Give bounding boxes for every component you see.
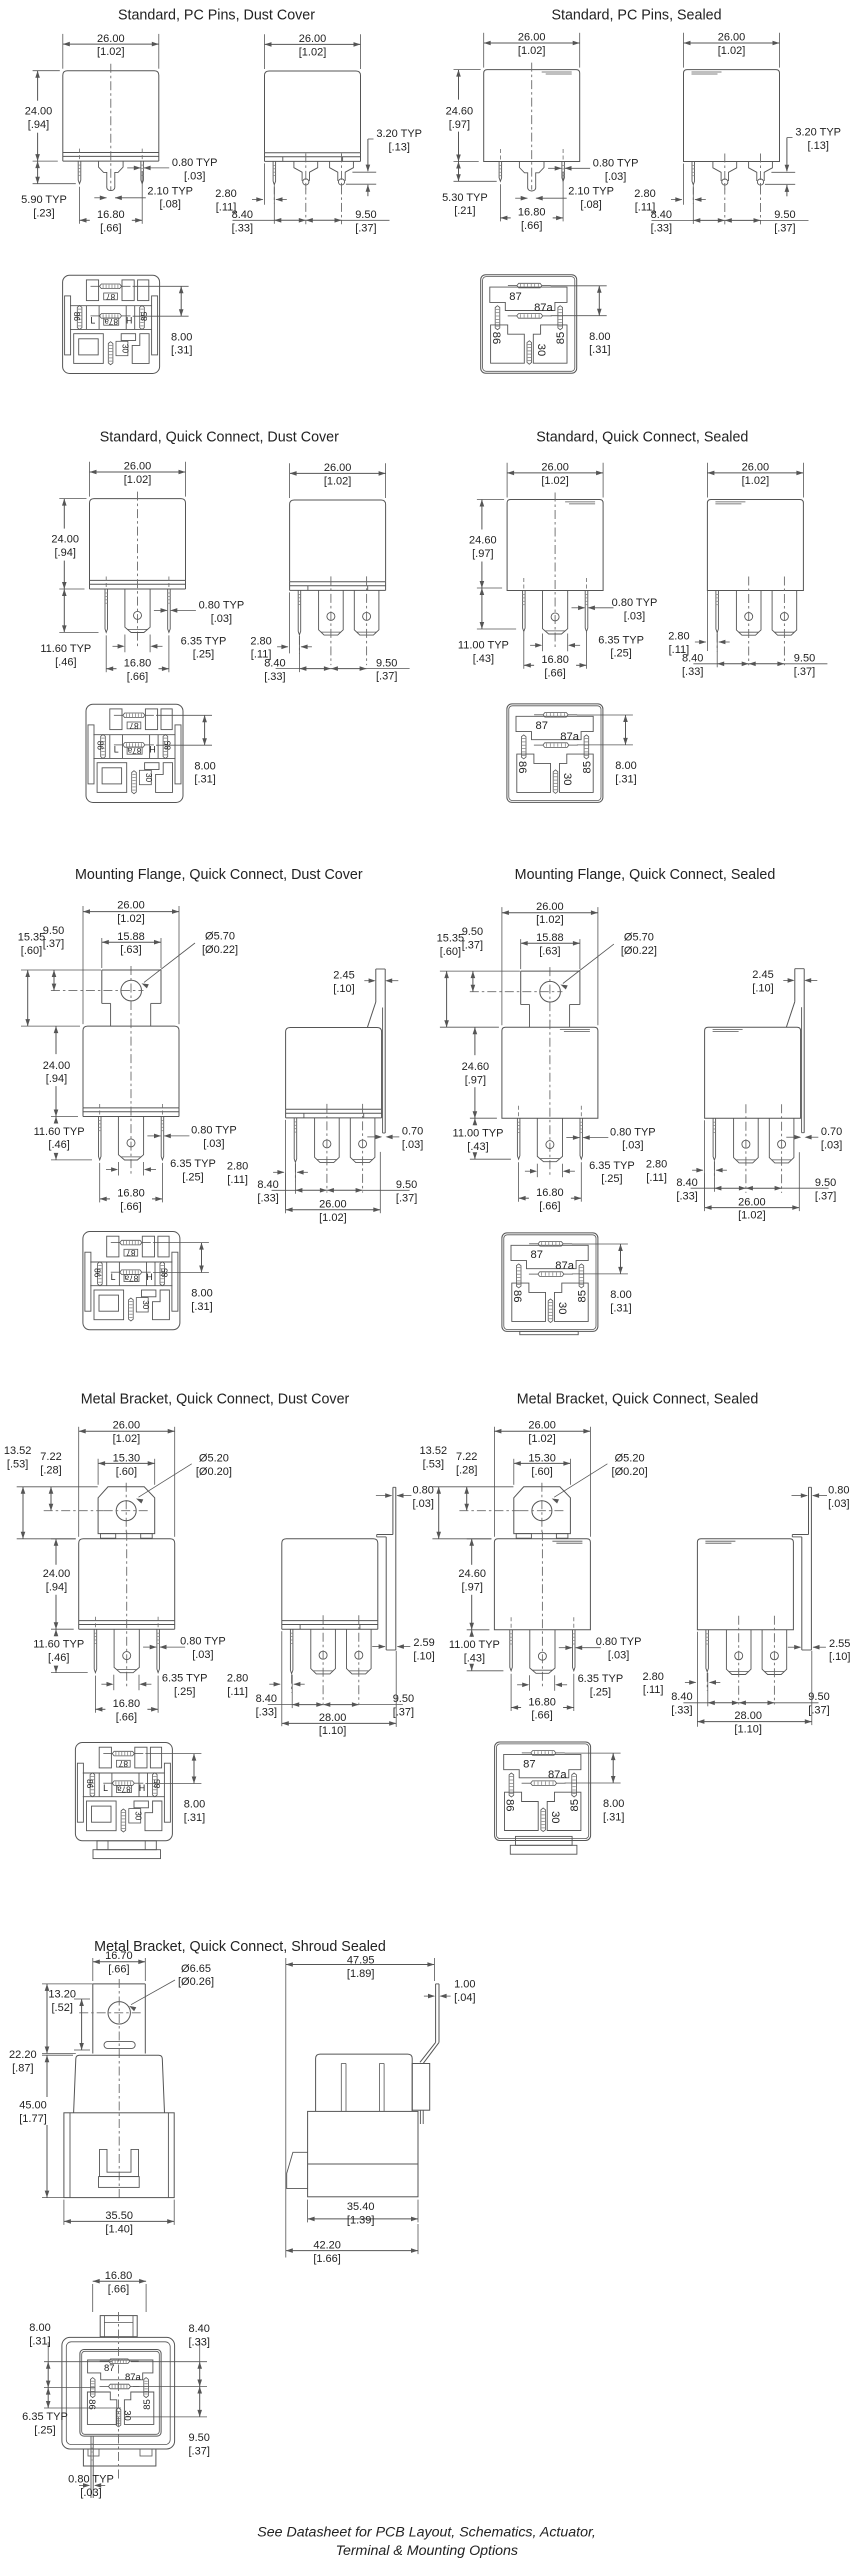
svg-text:16.80: 16.80 (124, 657, 152, 669)
svg-text:[.31]: [.31] (191, 1301, 212, 1313)
svg-text:[.97]: [.97] (465, 1074, 486, 1086)
svg-text:[.66]: [.66] (108, 2283, 129, 2295)
svg-text:6.35 TYP: 6.35 TYP (598, 634, 644, 646)
svg-text:[.66]: [.66] (539, 1200, 560, 1212)
svg-text:11.60 TYP: 11.60 TYP (34, 1126, 85, 1138)
svg-text:8.40: 8.40 (264, 657, 285, 669)
svg-text:[.03]: [.03] (622, 1140, 643, 1152)
svg-text:6.35 TYP: 6.35 TYP (170, 1158, 216, 1170)
svg-text:2.55: 2.55 (829, 1638, 850, 1650)
svg-text:[.03]: [.03] (624, 611, 645, 623)
svg-text:[.33]: [.33] (676, 1190, 697, 1202)
svg-text:28.00: 28.00 (734, 1710, 762, 1722)
svg-text:[.87]: [.87] (12, 2063, 33, 2075)
svg-text:See Datasheet for PCB Layout,: See Datasheet for PCB Layout, Schematics… (257, 2524, 596, 2540)
svg-text:[.66]: [.66] (120, 1201, 141, 1213)
svg-text:H: H (149, 745, 155, 755)
svg-text:[.37]: [.37] (396, 1192, 417, 1204)
svg-text:9.50: 9.50 (396, 1179, 417, 1191)
svg-text:24.60: 24.60 (458, 1568, 486, 1580)
svg-text:[.03]: [.03] (605, 171, 626, 183)
svg-text:2.80: 2.80 (646, 1158, 667, 1170)
svg-text:3.20 TYP: 3.20 TYP (795, 127, 841, 139)
svg-text:0.70: 0.70 (402, 1126, 423, 1138)
svg-text:87a: 87a (124, 1273, 138, 1282)
svg-text:2.45: 2.45 (333, 970, 354, 982)
svg-text:15.30: 15.30 (113, 1453, 141, 1465)
svg-text:26.00: 26.00 (738, 1196, 766, 1208)
svg-text:Metal Bracket, Quick Connect,: Metal Bracket, Quick Connect, Sealed (517, 1392, 759, 1408)
svg-text:86: 86 (504, 1799, 516, 1811)
svg-text:0.80: 0.80 (828, 1485, 849, 1497)
svg-text:24.60: 24.60 (462, 1061, 490, 1073)
svg-text:L: L (103, 1783, 108, 1793)
svg-text:8.00: 8.00 (589, 331, 610, 343)
svg-text:L: L (90, 316, 95, 326)
svg-text:[.03]: [.03] (412, 1498, 433, 1510)
svg-text:24.60: 24.60 (446, 106, 474, 118)
svg-text:[.60]: [.60] (440, 946, 461, 958)
svg-text:30: 30 (549, 1811, 561, 1823)
svg-text:86: 86 (85, 1779, 94, 1789)
svg-text:6.35 TYP: 6.35 TYP (181, 635, 227, 647)
svg-text:[.66]: [.66] (100, 222, 121, 234)
svg-text:15.88: 15.88 (536, 932, 564, 944)
svg-text:8.40: 8.40 (682, 653, 703, 665)
svg-text:85: 85 (581, 761, 593, 773)
svg-text:24.00: 24.00 (25, 106, 53, 118)
svg-text:8.40: 8.40 (188, 2323, 209, 2335)
svg-text:26.00: 26.00 (541, 462, 569, 474)
svg-text:26.00: 26.00 (97, 33, 125, 45)
svg-text:Standard, PC Pins, Sealed: Standard, PC Pins, Sealed (551, 8, 721, 24)
svg-text:[1.10]: [1.10] (319, 1725, 347, 1737)
svg-text:[.03]: [.03] (402, 1139, 423, 1151)
svg-text:1.00: 1.00 (454, 1979, 475, 1991)
svg-text:[.13]: [.13] (388, 142, 409, 154)
svg-text:30: 30 (144, 773, 153, 783)
svg-text:[.08]: [.08] (159, 199, 180, 211)
svg-text:[Ø0.22]: [Ø0.22] (621, 945, 657, 957)
svg-text:2.45: 2.45 (752, 969, 773, 981)
svg-text:6.35 TYP: 6.35 TYP (578, 1673, 624, 1685)
svg-text:45.00: 45.00 (19, 2099, 47, 2111)
svg-text:Ø5.20: Ø5.20 (615, 1453, 645, 1465)
svg-text:[Ø0.20]: [Ø0.20] (196, 1466, 232, 1478)
svg-text:[1.02]: [1.02] (541, 475, 569, 487)
svg-text:[.03]: [.03] (608, 1650, 629, 1662)
svg-text:26.00: 26.00 (324, 462, 352, 474)
svg-text:8.40: 8.40 (651, 209, 672, 221)
svg-text:16.80: 16.80 (528, 1696, 556, 1708)
svg-text:[.10]: [.10] (829, 1651, 850, 1663)
svg-text:9.50: 9.50 (188, 2432, 209, 2444)
svg-text:16.80: 16.80 (113, 1698, 141, 1710)
svg-text:0.80: 0.80 (412, 1485, 433, 1497)
svg-text:87: 87 (535, 720, 547, 732)
svg-text:26.00: 26.00 (299, 33, 327, 45)
svg-text:[.66]: [.66] (116, 1712, 137, 1724)
svg-text:Standard, Quick Connect, Dust: Standard, Quick Connect, Dust Cover (100, 430, 339, 446)
svg-text:87a: 87a (560, 731, 579, 743)
svg-text:[.60]: [.60] (531, 1466, 552, 1478)
svg-text:[1.02]: [1.02] (742, 475, 770, 487)
svg-text:35.50: 35.50 (105, 2210, 133, 2222)
svg-text:87: 87 (118, 1759, 128, 1768)
svg-text:[.52]: [.52] (51, 2002, 72, 2014)
svg-text:15.30: 15.30 (528, 1453, 556, 1465)
svg-text:22.20: 22.20 (9, 2049, 37, 2061)
svg-text:8.00: 8.00 (194, 760, 215, 772)
svg-text:[.31]: [.31] (194, 774, 215, 786)
svg-text:26.00: 26.00 (124, 461, 152, 473)
svg-text:3.20 TYP: 3.20 TYP (376, 128, 422, 140)
svg-text:2.80: 2.80 (668, 631, 689, 643)
svg-text:[.10]: [.10] (752, 983, 773, 995)
svg-text:[.94]: [.94] (46, 1073, 67, 1085)
svg-text:[.94]: [.94] (46, 1581, 67, 1593)
svg-text:86: 86 (511, 1290, 523, 1302)
svg-text:[Ø0.26]: [Ø0.26] (178, 1976, 214, 1988)
svg-text:85: 85 (142, 2399, 153, 2410)
svg-text:[.25]: [.25] (193, 649, 214, 661)
svg-text:30: 30 (556, 1302, 568, 1314)
svg-text:Metal Bracket, Quick Connect,: Metal Bracket, Quick Connect, Dust Cover (81, 1392, 350, 1408)
svg-text:[.23]: [.23] (33, 208, 54, 220)
svg-text:[.31]: [.31] (610, 1302, 631, 1314)
svg-text:7.22: 7.22 (456, 1451, 477, 1463)
svg-text:[.37]: [.37] (188, 2445, 209, 2457)
svg-text:[1.02]: [1.02] (324, 476, 352, 488)
svg-text:24.60: 24.60 (469, 534, 497, 546)
svg-text:8.40: 8.40 (676, 1177, 697, 1189)
svg-text:9.50: 9.50 (376, 657, 397, 669)
svg-text:[.66]: [.66] (531, 1710, 552, 1722)
svg-text:[.33]: [.33] (682, 666, 703, 678)
svg-text:30: 30 (141, 1300, 150, 1310)
svg-text:[.97]: [.97] (449, 119, 470, 131)
svg-text:13.52: 13.52 (4, 1445, 32, 1457)
svg-text:[.33]: [.33] (651, 223, 672, 235)
svg-text:[1.89]: [1.89] (347, 1968, 375, 1980)
svg-text:H: H (146, 1272, 152, 1282)
svg-text:[.03]: [.03] (821, 1139, 842, 1151)
svg-text:[.66]: [.66] (108, 1964, 129, 1976)
svg-text:2.80: 2.80 (215, 188, 236, 200)
svg-text:[.31]: [.31] (615, 773, 636, 785)
svg-text:Standard, Quick Connect, Seale: Standard, Quick Connect, Sealed (536, 430, 748, 446)
svg-text:0.80 TYP: 0.80 TYP (593, 158, 639, 170)
svg-text:87: 87 (509, 291, 521, 303)
svg-text:[.63]: [.63] (539, 945, 560, 957)
svg-text:[.31]: [.31] (29, 2335, 50, 2347)
svg-text:24.00: 24.00 (43, 1060, 71, 1072)
svg-text:5.30 TYP: 5.30 TYP (442, 192, 488, 204)
svg-text:87a: 87a (534, 302, 553, 314)
svg-text:[.03]: [.03] (828, 1498, 849, 1510)
svg-text:[1.02]: [1.02] (319, 1212, 347, 1224)
svg-text:[.66]: [.66] (544, 667, 565, 679)
svg-text:[.66]: [.66] (521, 220, 542, 232)
svg-text:8.00: 8.00 (171, 331, 192, 343)
svg-text:11.60 TYP: 11.60 TYP (33, 1639, 84, 1651)
svg-text:0.80 TYP: 0.80 TYP (180, 1636, 226, 1648)
svg-text:[1.66]: [1.66] (313, 2253, 341, 2265)
svg-text:87a: 87a (117, 1784, 131, 1793)
svg-text:[.21]: [.21] (454, 205, 475, 217)
svg-text:Terminal & Mounting Options: Terminal & Mounting Options (336, 2543, 518, 2559)
svg-text:[.10]: [.10] (333, 983, 354, 995)
svg-text:[.03]: [.03] (211, 613, 232, 625)
svg-text:8.40: 8.40 (232, 209, 253, 221)
svg-text:[.25]: [.25] (34, 2425, 55, 2437)
svg-text:2.80: 2.80 (250, 635, 271, 647)
svg-text:[1.02]: [1.02] (718, 45, 746, 57)
svg-text:[.97]: [.97] (472, 548, 493, 560)
svg-text:2.80: 2.80 (227, 1161, 248, 1173)
svg-text:85: 85 (569, 1799, 581, 1811)
svg-text:[.33]: [.33] (188, 2337, 209, 2349)
svg-text:8.00: 8.00 (615, 760, 636, 772)
svg-text:Mounting Flange, Quick Connect: Mounting Flange, Quick Connect, Sealed (515, 867, 776, 883)
svg-text:[.43]: [.43] (473, 653, 494, 665)
svg-text:35.40: 35.40 (347, 2201, 375, 2213)
svg-text:[.31]: [.31] (171, 345, 192, 357)
svg-text:[.25]: [.25] (182, 1172, 203, 1184)
svg-text:2.59: 2.59 (413, 1637, 434, 1649)
svg-text:9.50: 9.50 (462, 926, 483, 938)
svg-text:85: 85 (555, 332, 567, 344)
svg-text:9.50: 9.50 (355, 209, 376, 221)
svg-text:Ø5.70: Ø5.70 (624, 932, 654, 944)
svg-text:2.80: 2.80 (642, 1671, 663, 1683)
svg-text:16.80: 16.80 (541, 654, 569, 666)
svg-text:[1.02]: [1.02] (528, 1433, 556, 1445)
svg-text:16.80: 16.80 (105, 2270, 133, 2282)
svg-text:2.80: 2.80 (634, 188, 655, 200)
svg-text:Mounting Flange, Quick Connect: Mounting Flange, Quick Connect, Dust Cov… (75, 867, 363, 883)
svg-text:26.00: 26.00 (518, 32, 546, 44)
svg-text:11.00 TYP: 11.00 TYP (453, 1128, 504, 1140)
svg-text:H: H (139, 1783, 145, 1793)
svg-text:[.94]: [.94] (54, 547, 75, 559)
svg-text:8.00: 8.00 (184, 1799, 205, 1811)
svg-text:[.63]: [.63] (120, 944, 141, 956)
svg-text:26.00: 26.00 (319, 1198, 347, 1210)
svg-text:[.33]: [.33] (257, 1193, 278, 1205)
svg-text:87: 87 (104, 2363, 115, 2374)
svg-text:30: 30 (121, 344, 130, 354)
svg-text:86: 86 (72, 312, 81, 322)
svg-text:26.00: 26.00 (113, 1420, 141, 1432)
svg-text:[.03]: [.03] (80, 2487, 101, 2499)
svg-text:9.50: 9.50 (774, 209, 795, 221)
svg-text:6.35 TYP: 6.35 TYP (589, 1160, 635, 1172)
svg-text:[.11]: [.11] (227, 1686, 248, 1698)
svg-text:15.35: 15.35 (18, 932, 46, 944)
svg-text:[Ø0.22]: [Ø0.22] (202, 944, 238, 956)
svg-text:[1.02]: [1.02] (113, 1433, 141, 1445)
svg-text:9.50: 9.50 (815, 1177, 836, 1189)
svg-text:[1.39]: [1.39] (347, 2215, 375, 2227)
svg-text:[.10]: [.10] (413, 1651, 434, 1663)
svg-text:16.70: 16.70 (105, 1950, 133, 1962)
svg-text:85: 85 (576, 1290, 588, 1302)
svg-text:[.43]: [.43] (464, 1653, 485, 1665)
svg-text:11.60 TYP: 11.60 TYP (40, 643, 91, 655)
svg-text:L: L (114, 745, 119, 755)
svg-text:0.80 TYP: 0.80 TYP (612, 597, 658, 609)
svg-text:2.10 TYP: 2.10 TYP (568, 186, 614, 198)
svg-text:[1.02]: [1.02] (117, 913, 145, 925)
svg-text:42.20: 42.20 (313, 2240, 341, 2252)
svg-text:8.00: 8.00 (610, 1289, 631, 1301)
svg-text:87: 87 (523, 1758, 535, 1770)
svg-text:[.28]: [.28] (456, 1465, 477, 1477)
svg-text:26.00: 26.00 (117, 900, 145, 912)
svg-text:Ø6.65: Ø6.65 (181, 1963, 211, 1975)
svg-text:8.40: 8.40 (671, 1691, 692, 1703)
svg-text:30: 30 (121, 2410, 132, 2421)
svg-text:87a: 87a (548, 1769, 567, 1781)
svg-text:[1.40]: [1.40] (105, 2223, 133, 2235)
svg-text:[.13]: [.13] (807, 140, 828, 152)
svg-text:Metal Bracket, Quick Connect,: Metal Bracket, Quick Connect, Shroud Sea… (94, 1939, 386, 1955)
svg-text:L: L (111, 1272, 116, 1282)
svg-text:[1.02]: [1.02] (738, 1210, 766, 1222)
svg-text:86: 86 (516, 761, 528, 773)
svg-text:Ø5.70: Ø5.70 (205, 931, 235, 943)
svg-text:16.80: 16.80 (117, 1188, 145, 1200)
svg-text:0.80 TYP: 0.80 TYP (199, 600, 245, 612)
svg-text:26.00: 26.00 (718, 32, 746, 44)
svg-text:[.11]: [.11] (227, 1174, 248, 1186)
svg-text:11.00 TYP: 11.00 TYP (449, 1639, 500, 1651)
svg-text:11.00 TYP: 11.00 TYP (458, 640, 509, 652)
svg-text:15.88: 15.88 (117, 931, 145, 943)
svg-text:86: 86 (490, 332, 502, 344)
svg-text:24.00: 24.00 (43, 1568, 71, 1580)
svg-text:[.37]: [.37] (774, 223, 795, 235)
svg-text:[.37]: [.37] (815, 1190, 836, 1202)
svg-text:[.53]: [.53] (7, 1458, 28, 1470)
svg-text:[.60]: [.60] (116, 1466, 137, 1478)
svg-text:[1.02]: [1.02] (536, 914, 564, 926)
svg-text:8.00: 8.00 (603, 1798, 624, 1810)
svg-text:87: 87 (129, 721, 139, 730)
svg-text:[.60]: [.60] (21, 945, 42, 957)
svg-text:Ø5.20: Ø5.20 (199, 1453, 229, 1465)
svg-text:30: 30 (561, 773, 573, 785)
svg-text:0.80 TYP: 0.80 TYP (596, 1636, 642, 1648)
svg-text:13.52: 13.52 (420, 1445, 448, 1457)
svg-text:5.90 TYP: 5.90 TYP (21, 194, 67, 206)
svg-text:[.43]: [.43] (467, 1141, 488, 1153)
svg-text:[.11]: [.11] (646, 1172, 667, 1184)
svg-text:87a: 87a (127, 746, 141, 755)
svg-text:87: 87 (106, 292, 116, 301)
svg-text:6.35 TYP: 6.35 TYP (162, 1673, 208, 1685)
svg-text:24.00: 24.00 (51, 534, 79, 546)
svg-text:26.00: 26.00 (742, 462, 770, 474)
svg-text:H: H (126, 316, 132, 326)
svg-text:0.70: 0.70 (821, 1126, 842, 1138)
svg-text:[.37]: [.37] (462, 939, 483, 951)
svg-text:[.37]: [.37] (43, 938, 64, 950)
svg-text:[.08]: [.08] (580, 199, 601, 211)
svg-text:87a: 87a (555, 1260, 574, 1272)
svg-text:86: 86 (96, 741, 105, 751)
svg-text:[.04]: [.04] (454, 1992, 475, 2004)
svg-text:[.31]: [.31] (184, 1812, 205, 1824)
svg-text:0.80 TYP: 0.80 TYP (191, 1125, 237, 1137)
svg-text:30: 30 (133, 1811, 142, 1821)
svg-text:87: 87 (530, 1249, 542, 1261)
svg-text:[Ø0.20]: [Ø0.20] (612, 1466, 648, 1478)
svg-text:[.53]: [.53] (423, 1458, 444, 1470)
svg-text:[.31]: [.31] (603, 1812, 624, 1824)
svg-text:7.22: 7.22 (40, 1451, 61, 1463)
svg-text:[.97]: [.97] (461, 1581, 482, 1593)
svg-text:28.00: 28.00 (319, 1712, 347, 1724)
svg-text:0.80 TYP: 0.80 TYP (172, 157, 218, 169)
svg-text:26.00: 26.00 (536, 901, 564, 913)
svg-text:[.28]: [.28] (40, 1465, 61, 1477)
svg-text:[.25]: [.25] (601, 1173, 622, 1185)
svg-text:13.20: 13.20 (48, 1989, 76, 2001)
svg-text:[.37]: [.37] (376, 671, 397, 683)
svg-text:[.03]: [.03] (192, 1649, 213, 1661)
svg-text:2.80: 2.80 (227, 1673, 248, 1685)
svg-text:[1.77]: [1.77] (19, 2113, 47, 2125)
svg-text:[1.02]: [1.02] (299, 47, 327, 59)
svg-text:[.33]: [.33] (264, 671, 285, 683)
svg-text:26.00: 26.00 (528, 1420, 556, 1432)
svg-text:[1.02]: [1.02] (97, 46, 125, 58)
svg-text:2.10 TYP: 2.10 TYP (147, 185, 193, 197)
svg-text:[.33]: [.33] (256, 1706, 277, 1718)
svg-text:[.03]: [.03] (184, 171, 205, 183)
svg-text:[.31]: [.31] (589, 344, 610, 356)
svg-text:[.25]: [.25] (174, 1686, 195, 1698)
svg-text:8.40: 8.40 (256, 1693, 277, 1705)
svg-text:[.11]: [.11] (643, 1684, 664, 1696)
svg-text:[.25]: [.25] (590, 1687, 611, 1699)
svg-text:6.35 TYP: 6.35 TYP (22, 2411, 68, 2423)
svg-text:47.95: 47.95 (347, 1955, 375, 1967)
svg-text:[.94]: [.94] (28, 119, 49, 131)
svg-text:9.50: 9.50 (43, 925, 64, 937)
svg-text:[.66]: [.66] (127, 671, 148, 683)
svg-text:[1.02]: [1.02] (124, 474, 152, 486)
svg-text:[.46]: [.46] (55, 656, 76, 668)
svg-text:[.37]: [.37] (794, 666, 815, 678)
svg-text:Standard, PC Pins, Dust Cover: Standard, PC Pins, Dust Cover (118, 8, 315, 24)
svg-text:15.35: 15.35 (437, 933, 465, 945)
svg-text:30: 30 (535, 344, 547, 356)
svg-text:87: 87 (126, 1248, 136, 1257)
svg-text:0.80 TYP: 0.80 TYP (610, 1126, 656, 1138)
svg-text:[.46]: [.46] (48, 1652, 69, 1664)
svg-text:8.40: 8.40 (257, 1179, 278, 1191)
svg-text:[1.02]: [1.02] (518, 45, 546, 57)
svg-text:[.37]: [.37] (355, 222, 376, 234)
svg-text:86: 86 (93, 1268, 102, 1278)
svg-text:[.33]: [.33] (232, 223, 253, 235)
svg-text:8.00: 8.00 (191, 1288, 212, 1300)
svg-text:9.50: 9.50 (794, 653, 815, 665)
svg-text:[.46]: [.46] (48, 1139, 69, 1151)
